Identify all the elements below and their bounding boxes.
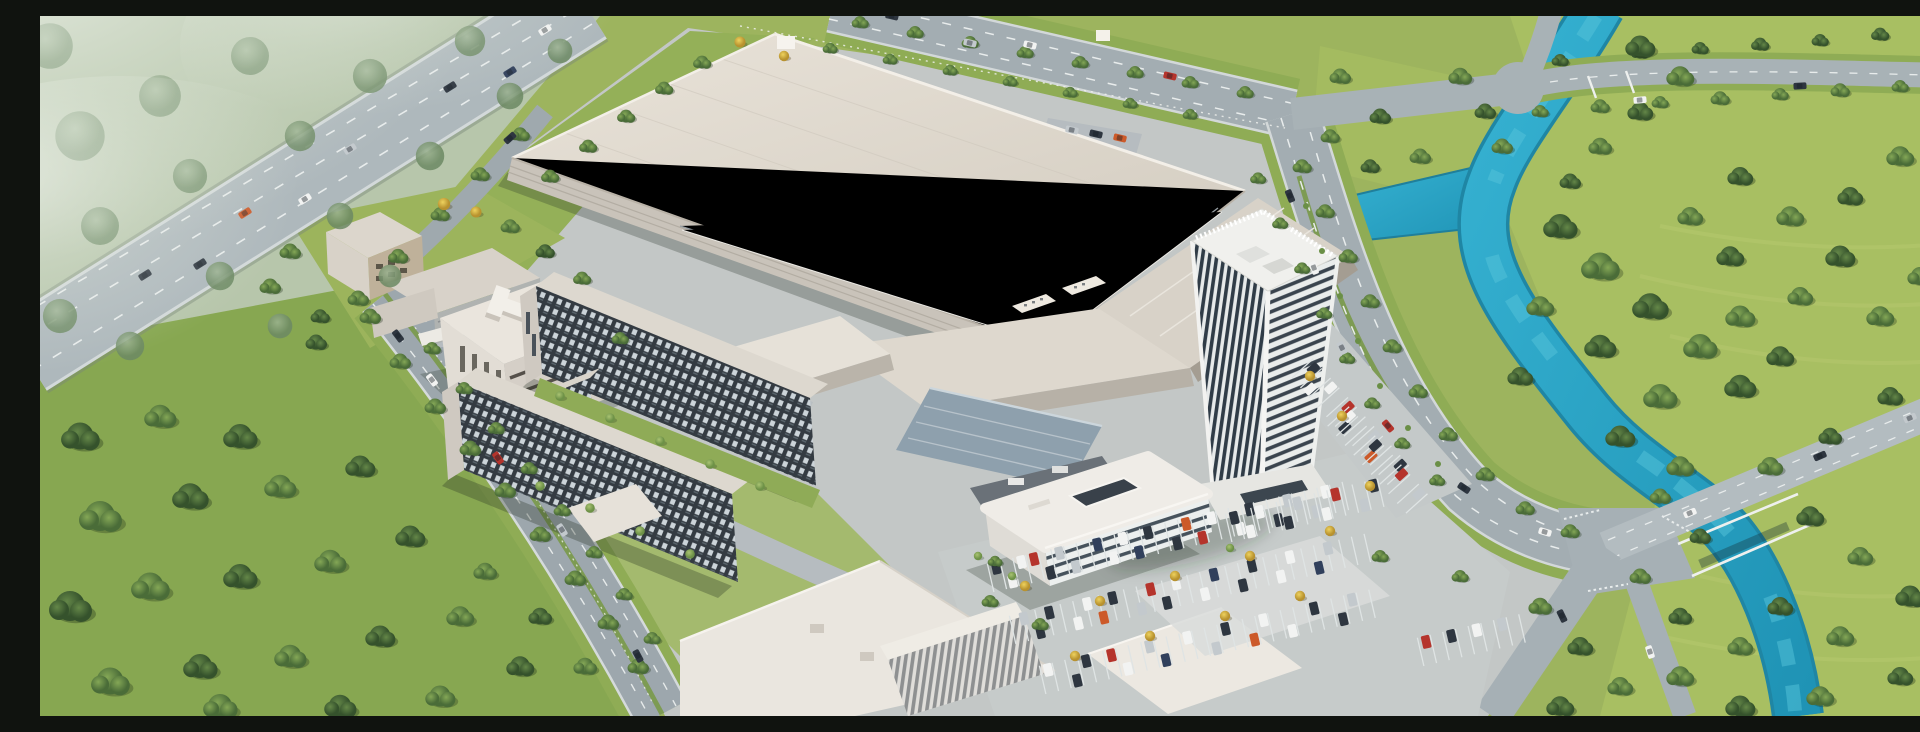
roof-hut xyxy=(777,36,795,49)
render-canvas xyxy=(40,16,1920,716)
gatehouse xyxy=(1096,30,1110,41)
aerial-campus-render: Aerial 3D rendering of a corporate manuf… xyxy=(40,16,1920,716)
